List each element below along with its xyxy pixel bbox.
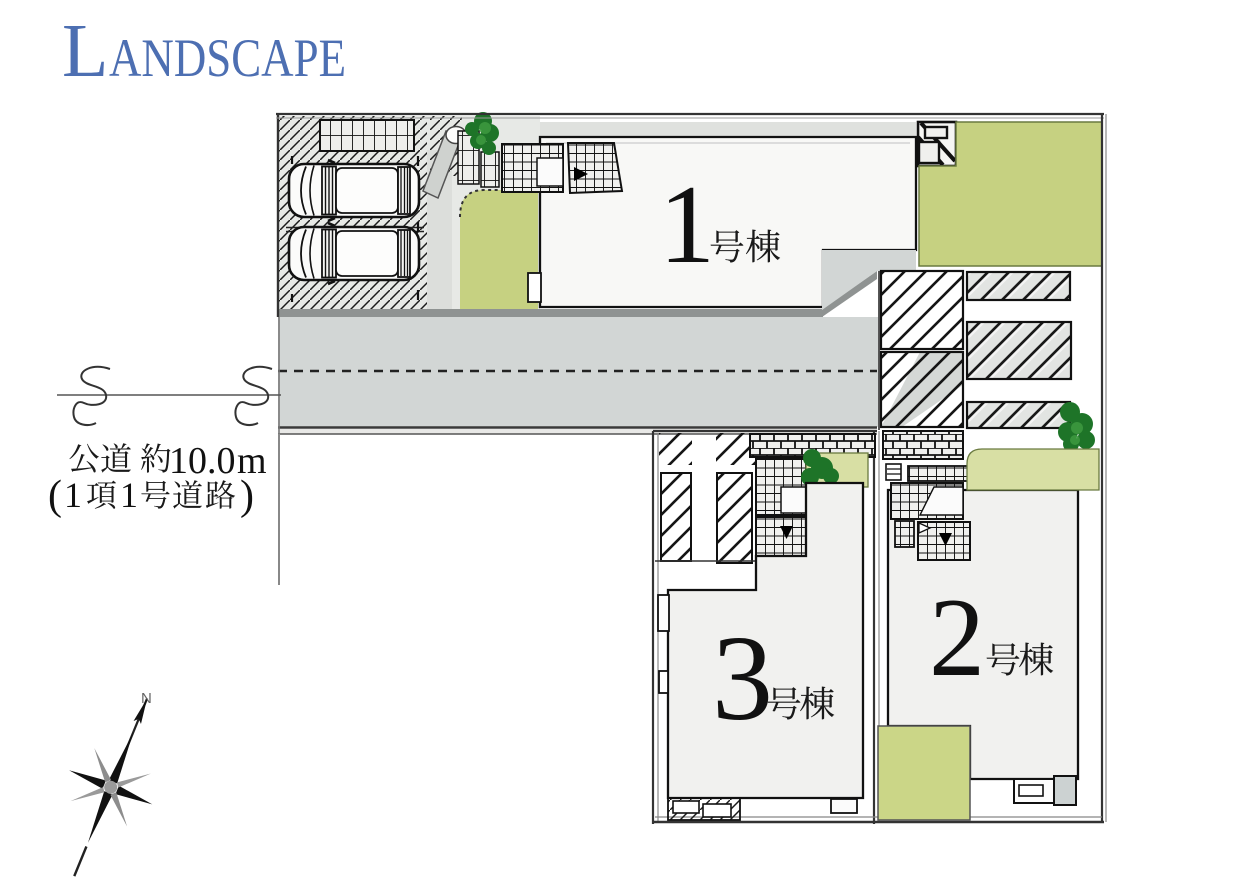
svg-text:(: ( (48, 473, 62, 519)
svg-text:ANDSCAPE: ANDSCAPE (109, 28, 346, 88)
svg-text:2: 2 (929, 576, 985, 700)
svg-text:1: 1 (659, 163, 715, 287)
svg-text:10.0: 10.0 (169, 440, 236, 482)
svg-text:1: 1 (64, 475, 82, 515)
svg-text:3: 3 (712, 611, 773, 746)
svg-text:): ) (240, 473, 254, 519)
svg-text:L: L (62, 9, 108, 93)
svg-text:1: 1 (120, 475, 138, 515)
svg-text:N: N (141, 690, 152, 707)
